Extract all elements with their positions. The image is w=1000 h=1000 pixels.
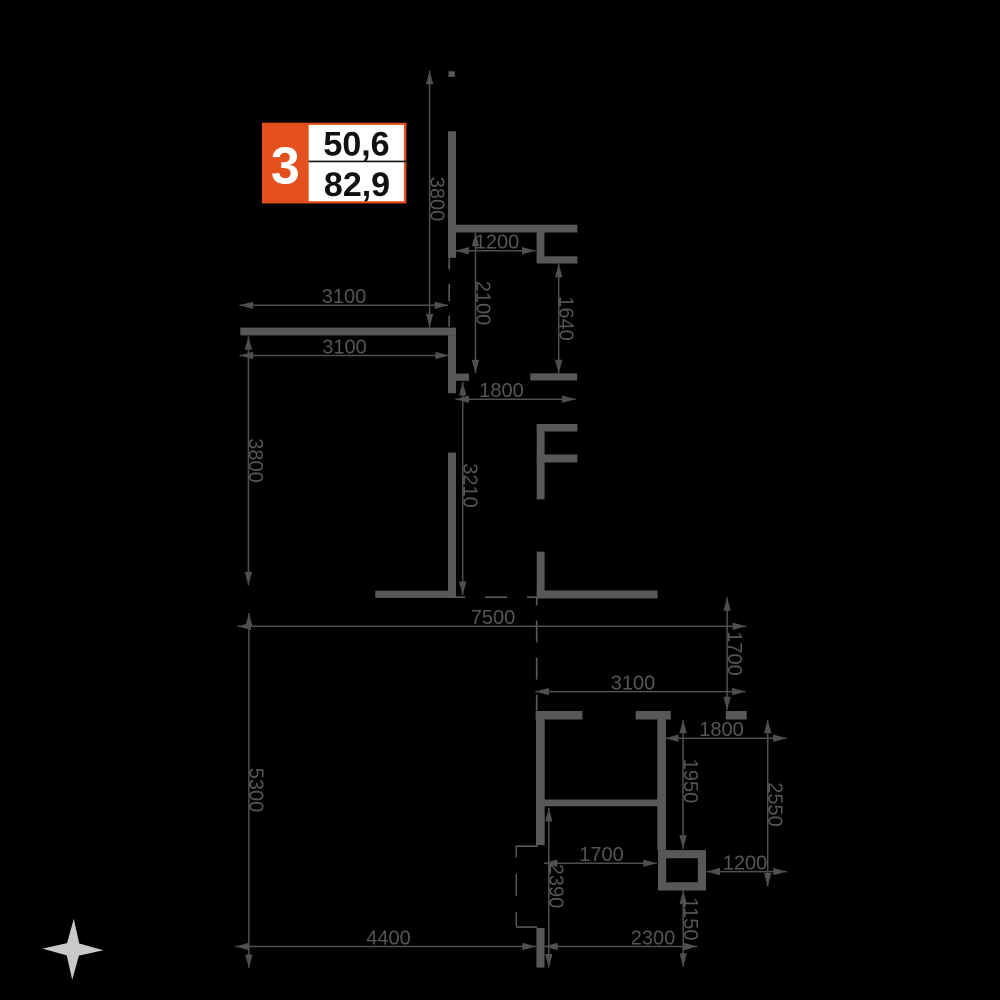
svg-text:82,9: 82,9: [324, 166, 390, 204]
svg-text:3100: 3100: [322, 336, 367, 358]
svg-text:1950: 1950: [679, 759, 701, 804]
svg-text:7500: 7500: [471, 607, 516, 629]
svg-text:1640: 1640: [555, 296, 577, 341]
svg-text:4400: 4400: [366, 927, 411, 949]
svg-text:2550: 2550: [764, 782, 786, 827]
svg-text:3800: 3800: [425, 177, 447, 222]
svg-text:2100: 2100: [471, 281, 493, 326]
svg-text:2300: 2300: [631, 927, 676, 949]
svg-text:1700: 1700: [579, 844, 624, 866]
svg-text:3: 3: [271, 138, 300, 196]
svg-text:5300: 5300: [245, 768, 267, 813]
svg-text:1800: 1800: [479, 380, 524, 402]
svg-text:1200: 1200: [723, 852, 768, 874]
svg-text:3100: 3100: [611, 672, 656, 694]
svg-text:3800: 3800: [244, 438, 266, 483]
svg-text:1800: 1800: [699, 719, 744, 741]
svg-text:50,6: 50,6: [323, 126, 389, 164]
svg-text:1700: 1700: [723, 631, 745, 676]
svg-text:1150: 1150: [679, 897, 701, 940]
svg-text:3100: 3100: [322, 286, 367, 308]
svg-text:2390: 2390: [545, 864, 567, 909]
svg-text:3210: 3210: [459, 463, 481, 508]
svg-text:1200: 1200: [475, 232, 520, 254]
